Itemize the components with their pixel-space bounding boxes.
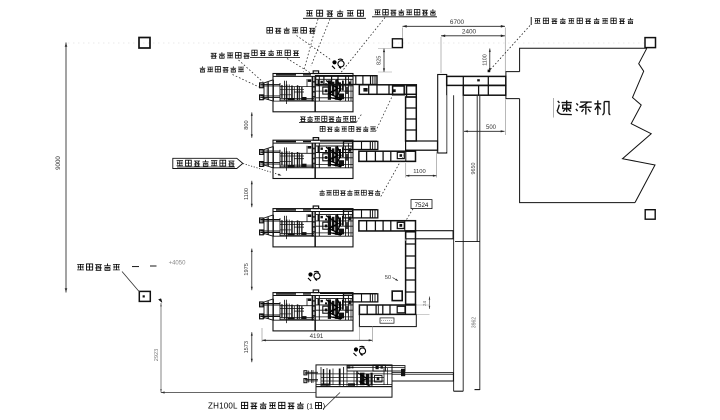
svg-text:6700: 6700 [450, 19, 465, 26]
svg-text:1100: 1100 [413, 169, 425, 175]
svg-text:7524: 7524 [415, 202, 429, 209]
svg-text:500: 500 [486, 125, 497, 131]
svg-text:9650: 9650 [471, 163, 477, 175]
svg-text:(1: (1 [307, 402, 314, 411]
svg-text:3962: 3962 [471, 317, 477, 328]
svg-text:1975: 1975 [244, 263, 250, 275]
svg-text:2400: 2400 [462, 29, 477, 36]
svg-text:4191: 4191 [310, 333, 324, 340]
svg-text:2923: 2923 [154, 349, 160, 361]
svg-text:800: 800 [244, 120, 250, 129]
svg-text:1100: 1100 [483, 54, 489, 66]
svg-text:50: 50 [385, 275, 391, 281]
svg-text:825: 825 [377, 56, 383, 65]
svg-text:1573: 1573 [244, 341, 250, 353]
svg-text:+4050: +4050 [169, 261, 187, 267]
svg-text:ZH100L: ZH100L [208, 402, 238, 411]
svg-text:1100: 1100 [244, 188, 250, 200]
svg-text:9000: 9000 [55, 156, 62, 170]
